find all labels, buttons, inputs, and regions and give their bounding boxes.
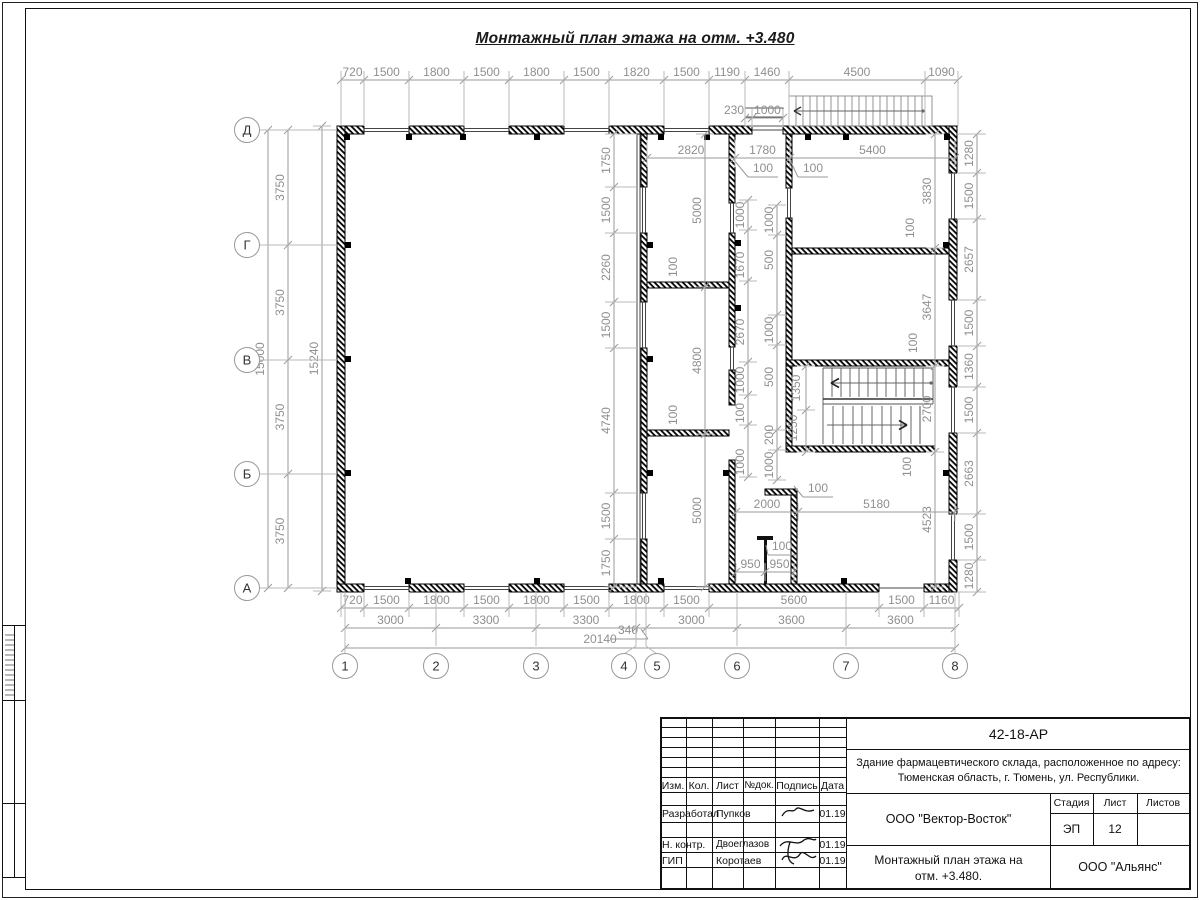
tb-col-kol: Кол. — [686, 780, 712, 792]
svg-text:4: 4 — [620, 659, 627, 674]
svg-text:1750: 1750 — [599, 549, 613, 576]
tb-contractor: ООО "Вектор-Восток" — [847, 812, 1050, 826]
svg-text:500: 500 — [762, 250, 776, 270]
svg-text:200: 200 — [762, 425, 776, 445]
svg-text:1: 1 — [341, 659, 348, 674]
tb-col-list: Лист — [712, 780, 743, 792]
svg-text:100: 100 — [772, 539, 792, 553]
tb-date-ncontrol: 01.19 — [819, 839, 846, 851]
svg-text:1500: 1500 — [962, 182, 976, 209]
window-lines — [364, 129, 955, 590]
tb-col-izm: Изм. — [660, 780, 686, 792]
svg-text:3300: 3300 — [473, 613, 500, 627]
tb-sheet-label: Лист — [1093, 797, 1137, 809]
tb-date-gip: 01.19 — [819, 855, 846, 867]
tb-sheets-label: Листов — [1137, 797, 1189, 809]
svg-text:3000: 3000 — [377, 613, 404, 627]
svg-text:2670: 2670 — [733, 318, 747, 345]
svg-text:8: 8 — [951, 659, 958, 674]
svg-text:100: 100 — [803, 161, 823, 175]
svg-text:230: 230 — [724, 103, 744, 117]
svg-text:3750: 3750 — [273, 517, 287, 544]
svg-text:100: 100 — [666, 257, 680, 277]
tb-role-ncontrol: Н. контр. — [662, 839, 705, 851]
svg-text:2820: 2820 — [678, 143, 705, 157]
svg-text:5600: 5600 — [781, 593, 808, 607]
tb-project-line1: Здание фармацевтического склада, располо… — [847, 757, 1190, 769]
exterior-stair — [789, 96, 932, 126]
svg-text:1500: 1500 — [673, 65, 700, 79]
svg-text:1500: 1500 — [473, 65, 500, 79]
svg-text:5000: 5000 — [690, 197, 704, 224]
svg-text:1000: 1000 — [762, 316, 776, 343]
signature-ncontrol-gip — [776, 834, 820, 868]
svg-text:100: 100 — [808, 481, 828, 495]
svg-text:1000: 1000 — [733, 448, 747, 475]
svg-text:1000: 1000 — [754, 103, 781, 117]
svg-text:1350: 1350 — [789, 374, 803, 401]
svg-text:1800: 1800 — [423, 65, 450, 79]
svg-text:1160: 1160 — [929, 593, 955, 607]
svg-text:1090: 1090 — [928, 65, 955, 79]
svg-text:2: 2 — [432, 659, 439, 674]
svg-text:3600: 3600 — [887, 613, 914, 627]
tb-name-developer: Пупков — [716, 808, 751, 820]
svg-text:Д: Д — [243, 123, 252, 138]
tb-name-gip: Коротаев — [716, 855, 761, 867]
tb-col-data: Дата — [819, 780, 846, 792]
svg-text:4500: 4500 — [844, 65, 871, 79]
svg-text:1750: 1750 — [599, 147, 613, 174]
drawing-sheet: Монтажный план этажа на отм. +3.480 — [0, 0, 1200, 900]
svg-text:100: 100 — [906, 333, 920, 353]
svg-text:5: 5 — [653, 659, 660, 674]
svg-text:1500: 1500 — [888, 593, 915, 607]
svg-text:1000: 1000 — [733, 366, 747, 393]
svg-text:Б: Б — [243, 467, 252, 482]
svg-text:1460: 1460 — [754, 65, 781, 79]
tb-col-doc: №док. — [743, 780, 775, 791]
svg-text:100: 100 — [903, 218, 917, 238]
svg-text:3750: 3750 — [273, 289, 287, 316]
svg-text:1500: 1500 — [962, 396, 976, 423]
interior-stair — [823, 368, 933, 444]
tb-name-ncontrol: Двоеглазов — [716, 839, 769, 850]
svg-text:1800: 1800 — [523, 65, 550, 79]
tb-project-line2: Тюменская область, г. Тюмень, ул. Респуб… — [847, 772, 1190, 784]
svg-text:5400: 5400 — [859, 143, 886, 157]
svg-text:1000: 1000 — [762, 451, 776, 478]
svg-text:4523: 4523 — [920, 506, 934, 533]
svg-text:1500: 1500 — [573, 65, 600, 79]
tb-date-developer: 01.19 — [819, 808, 846, 820]
svg-text:3647: 3647 — [920, 293, 934, 320]
svg-text:2260: 2260 — [599, 254, 613, 281]
stamp-illegible-text — [5, 634, 14, 696]
svg-text:720: 720 — [342, 593, 362, 607]
svg-text:1250: 1250 — [786, 414, 800, 441]
svg-text:1670: 1670 — [733, 251, 747, 278]
svg-text:1500: 1500 — [373, 65, 400, 79]
tb-title-line1: Монтажный план этажа на — [847, 853, 1050, 867]
svg-text:1500: 1500 — [962, 523, 976, 550]
svg-text:4740: 4740 — [599, 407, 613, 434]
tb-client: ООО "Альянс" — [1050, 860, 1190, 874]
svg-text:1500: 1500 — [573, 593, 600, 607]
svg-text:100: 100 — [666, 405, 680, 425]
svg-text:500: 500 — [762, 367, 776, 387]
svg-text:1500: 1500 — [599, 311, 613, 338]
svg-text:1500: 1500 — [373, 593, 400, 607]
signature-developer — [778, 802, 818, 822]
svg-text:2657: 2657 — [962, 246, 976, 273]
svg-text:950: 950 — [740, 557, 760, 571]
svg-text:1500: 1500 — [473, 593, 500, 607]
svg-text:100: 100 — [753, 161, 773, 175]
svg-text:20140: 20140 — [583, 632, 617, 646]
tb-role-gip: ГИП — [662, 855, 683, 867]
svg-text:100: 100 — [900, 457, 914, 477]
svg-text:340: 340 — [618, 623, 638, 637]
svg-text:1000: 1000 — [733, 201, 747, 228]
svg-text:2000: 2000 — [754, 497, 781, 511]
tb-doc-number: 42-18-АР — [847, 726, 1190, 742]
svg-text:А: А — [243, 581, 252, 596]
svg-text:1500: 1500 — [962, 309, 976, 336]
svg-text:2700: 2700 — [920, 395, 934, 422]
pilasters — [344, 134, 950, 584]
svg-text:6: 6 — [733, 659, 740, 674]
svg-text:4800: 4800 — [690, 347, 704, 374]
svg-text:1820: 1820 — [623, 65, 650, 79]
svg-text:3: 3 — [532, 659, 539, 674]
svg-text:1500: 1500 — [673, 593, 700, 607]
svg-text:1780: 1780 — [749, 143, 776, 157]
svg-text:7: 7 — [842, 659, 849, 674]
svg-text:3750: 3750 — [273, 403, 287, 430]
svg-text:1280: 1280 — [962, 562, 976, 589]
tb-role-developer: Разработал — [662, 808, 719, 820]
svg-text:3300: 3300 — [573, 613, 600, 627]
tb-sheet-value: 12 — [1093, 822, 1137, 836]
svg-text:720: 720 — [342, 65, 362, 79]
svg-text:3750: 3750 — [273, 174, 287, 201]
svg-text:100: 100 — [733, 403, 747, 423]
svg-text:Г: Г — [243, 238, 250, 253]
tb-stage-value: ЭП — [1050, 822, 1093, 836]
svg-text:5180: 5180 — [863, 497, 890, 511]
svg-text:3000: 3000 — [678, 613, 705, 627]
svg-text:1500: 1500 — [599, 196, 613, 223]
svg-text:1000: 1000 — [762, 206, 776, 233]
tb-col-podpis: Подпись — [775, 780, 819, 792]
svg-text:1190: 1190 — [714, 65, 740, 79]
tb-stage-label: Стадия — [1050, 797, 1093, 809]
svg-text:15240: 15240 — [307, 341, 321, 375]
svg-text:В: В — [243, 353, 252, 368]
svg-text:1360: 1360 — [962, 353, 976, 380]
tb-title-line2: отм. +3.480. — [847, 869, 1050, 883]
svg-text:3830: 3830 — [920, 177, 934, 204]
svg-text:950: 950 — [769, 557, 789, 571]
svg-text:5000: 5000 — [690, 497, 704, 524]
svg-text:3600: 3600 — [778, 613, 805, 627]
svg-text:1280: 1280 — [962, 140, 976, 167]
svg-text:1500: 1500 — [599, 502, 613, 529]
svg-text:2663: 2663 — [962, 460, 976, 487]
svg-text:1800: 1800 — [423, 593, 450, 607]
svg-text:1800: 1800 — [523, 593, 550, 607]
